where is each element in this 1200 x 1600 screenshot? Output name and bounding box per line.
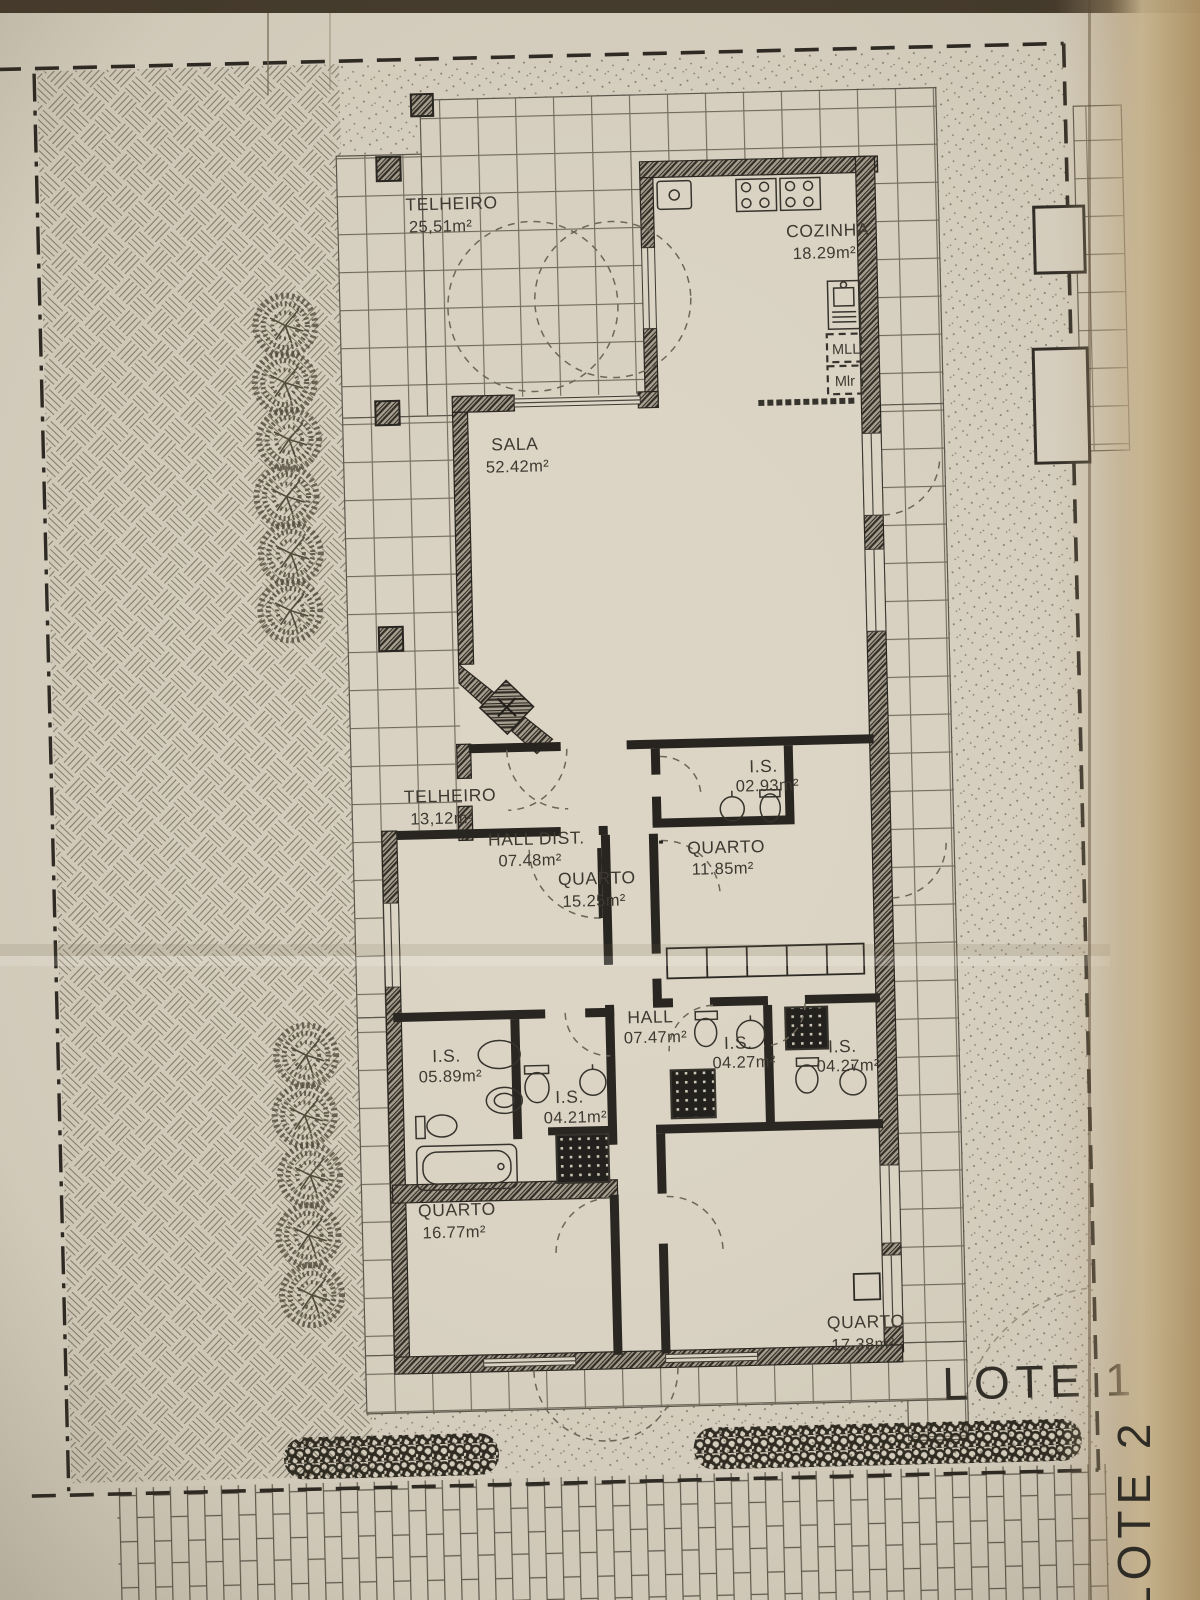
- photo-vignette: [0, 0, 1200, 1600]
- floor-plan-photo: TELHEIRO25,51m² COZINHA18.29m² SALA52.42…: [0, 0, 1200, 1600]
- paper-fold-right: [1055, 0, 1200, 1600]
- lote2-label: LOTE 2: [1108, 1417, 1160, 1600]
- paper-fold-line: [1088, 0, 1091, 1600]
- plan-canvas: TELHEIRO25,51m² COZINHA18.29m² SALA52.42…: [0, 0, 1200, 1600]
